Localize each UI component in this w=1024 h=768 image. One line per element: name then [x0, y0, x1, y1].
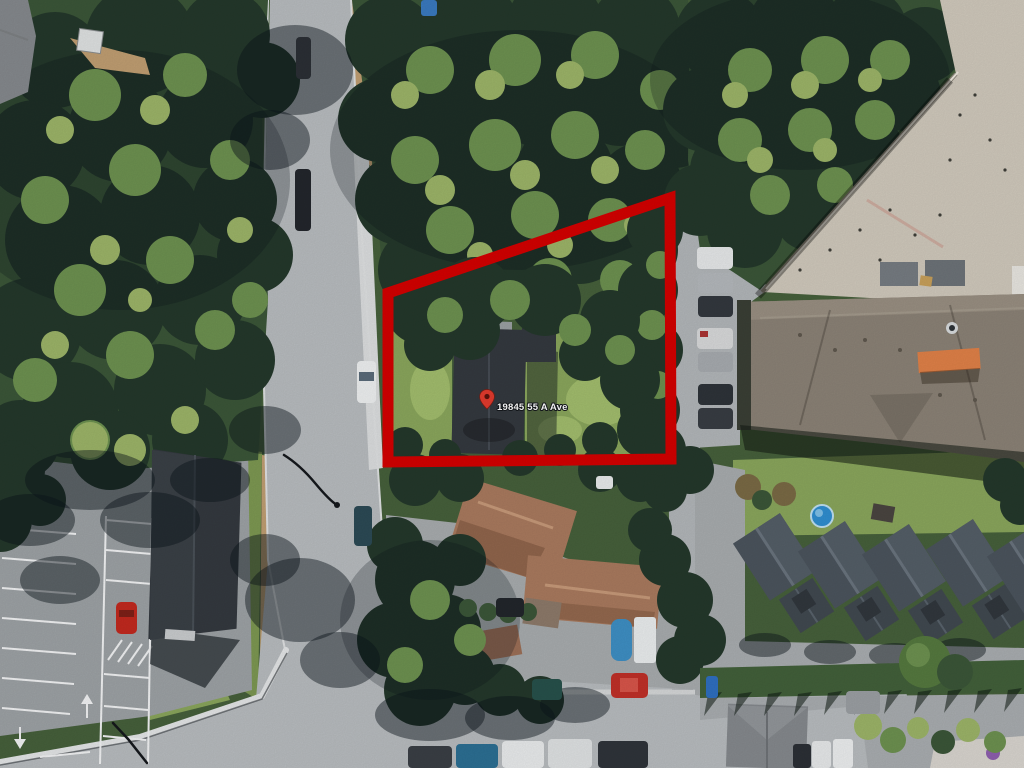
- satellite-canvas: 19845 55 A Ave: [0, 0, 1024, 768]
- aerial-map[interactable]: 19845 55 A Ave: [0, 0, 1024, 768]
- grain-overlay: [0, 0, 1024, 768]
